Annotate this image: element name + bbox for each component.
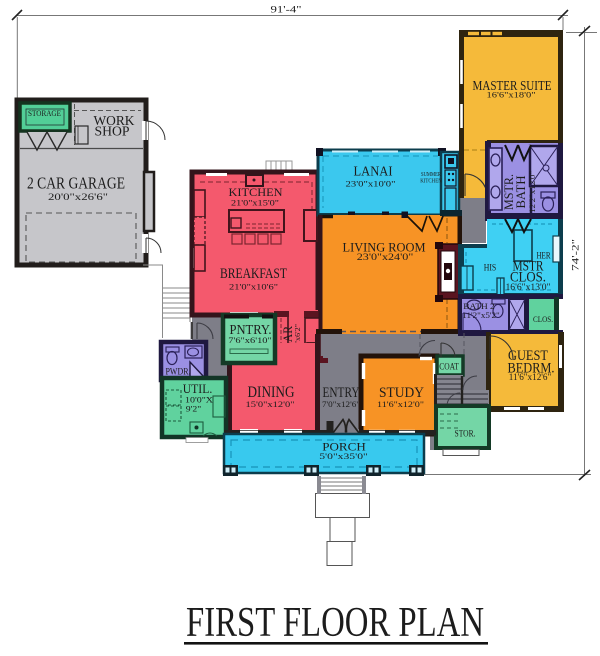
svg-text:PNTRY.: PNTRY. xyxy=(230,322,272,337)
svg-text:HER: HER xyxy=(537,251,551,262)
svg-text:11'6"x12'0": 11'6"x12'0" xyxy=(377,399,424,409)
svg-text:KITCHEN: KITCHEN xyxy=(420,178,442,185)
svg-text:2 CAR GARAGE: 2 CAR GARAGE xyxy=(27,174,125,193)
svg-text:7'0"x12'6": 7'0"x12'6" xyxy=(322,399,360,409)
svg-text:9'2": 9'2" xyxy=(186,404,202,414)
svg-text:21'0"x10'6": 21'0"x10'6" xyxy=(229,283,278,292)
svg-text:CLOS.: CLOS. xyxy=(533,314,553,324)
svg-text:20'0"x26'6": 20'0"x26'6" xyxy=(48,193,108,203)
svg-text:15'0"x12'0": 15'0"x12'0" xyxy=(246,399,295,409)
svg-text:7'6"x6'10": 7'6"x6'10" xyxy=(228,336,272,345)
svg-text:COAT: COAT xyxy=(439,362,459,373)
svg-text:91'-4": 91'-4" xyxy=(271,6,302,16)
svg-text:KITCHEN: KITCHEN xyxy=(229,187,283,199)
svg-text:BREAKFAST: BREAKFAST xyxy=(220,266,287,282)
svg-text:SHOP: SHOP xyxy=(95,125,130,140)
svg-text:BATH: BATH xyxy=(513,176,528,209)
svg-text:23'0"x10'0": 23'0"x10'0" xyxy=(346,180,396,189)
svg-text:5'0"x35'0": 5'0"x35'0" xyxy=(319,451,368,461)
svg-text:23'0"x24'0": 23'0"x24'0" xyxy=(357,252,414,262)
svg-text:11'2"x5'2": 11'2"x5'2" xyxy=(462,311,500,320)
svg-text:HIS: HIS xyxy=(484,263,497,274)
svg-text:12'2"x12'0": 12'2"x12'0" xyxy=(528,171,537,213)
svg-text:FIRST FLOOR PLAN: FIRST FLOOR PLAN xyxy=(186,600,484,646)
svg-text:21'0"x15'0": 21'0"x15'0" xyxy=(231,199,279,208)
svg-text:STOR.: STOR. xyxy=(455,429,476,440)
svg-text:16'6"x13'0": 16'6"x13'0" xyxy=(506,282,551,292)
svg-text:16'6"x18'0": 16'6"x18'0" xyxy=(487,91,536,100)
svg-text:LANAI: LANAI xyxy=(354,164,393,179)
svg-text:STORAGE: STORAGE xyxy=(28,108,61,118)
svg-text:74'-2": 74'-2" xyxy=(572,239,582,271)
svg-text:11'6"x12'6": 11'6"x12'6" xyxy=(509,372,552,382)
svg-text:BATH 2: BATH 2 xyxy=(463,301,495,311)
